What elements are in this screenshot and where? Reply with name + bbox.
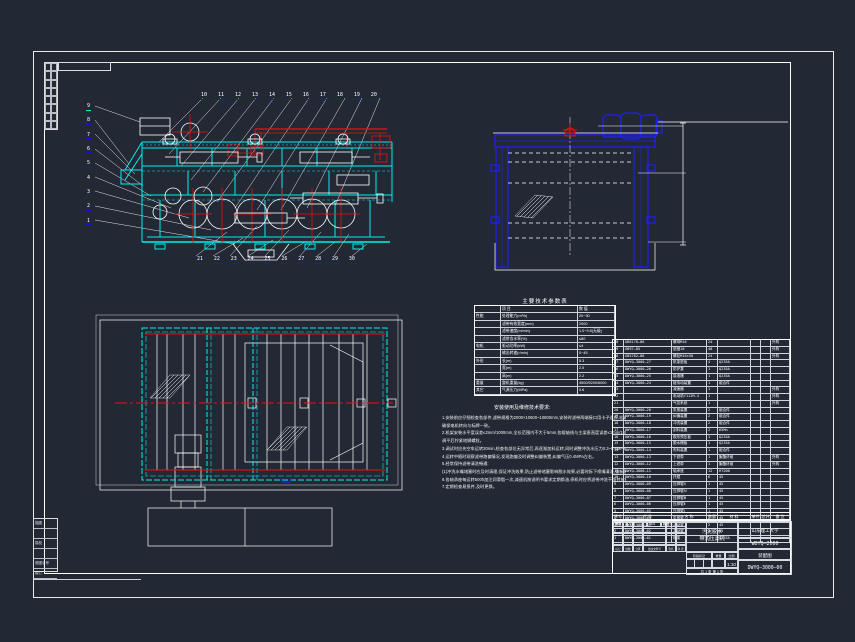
bom-row: 30GB6170—86螺母M16 24 外购	[613, 340, 790, 347]
part-callout: 6	[86, 146, 91, 154]
notes-title: 安装使用及维修技术要求:	[494, 404, 626, 411]
note-line: 7.定期检查易损件,及时更换。	[442, 483, 626, 491]
bom-row: 27DWYQ—3000—27机架垫板 4Q235A	[613, 360, 790, 367]
parameter-row: 其它气源压力(MPa)0.6	[475, 387, 615, 394]
bom-row: 21气控系统 1 外购	[613, 401, 790, 408]
part-callout: 8	[86, 117, 91, 125]
bom-row: 16DWYQ—3000—16楔形预压板 1Q235A	[613, 435, 790, 442]
part-callout: 11	[217, 92, 225, 100]
end-view	[488, 105, 790, 275]
bom-header-cell: 数量	[707, 513, 718, 519]
note-line: (1)冲洗水嘴堵塞时应及时清理,保证冲洗效果,防止滤带堵塞影响脱水效果,必要时拆…	[442, 468, 626, 476]
drawing-number: DWYQ—3000—00	[739, 561, 791, 575]
bom-row: 12DWYQ—3000—12上滤带 1聚酯纤维 外购	[613, 462, 790, 469]
bom-header-cell: 名 称	[672, 513, 707, 519]
sheet-count: 共 1 张 第 1 张	[687, 569, 737, 575]
note-line: 1.安装前应仔细检查各部件,滤带规格为2000×10600~10800mm,安装…	[442, 414, 626, 422]
part-callout: 13	[251, 92, 259, 100]
bom-row: 29GB97—85垫圈16 48 外购	[613, 347, 790, 354]
bom-row: 26DWYQ—3000—26防护罩 1Q235A	[613, 367, 790, 374]
revision-strip	[44, 62, 58, 130]
bom-row: 17DWYQ—3000—17刮料装置 265Mn	[613, 428, 790, 435]
note-line: 调平后拧紧地脚螺栓。	[442, 437, 626, 445]
note-line: 2.机架安装水平度误差≤2mm/1000mm,全长范围内不大于5mm,各辊轴线与…	[442, 429, 626, 437]
cad-drawing-sheet: 描图描校底图总号装订	[0, 0, 855, 642]
part-callout: 15	[285, 92, 293, 100]
callouts-bottom: 21222324252627282930	[196, 256, 356, 264]
part-callout: 10	[200, 92, 208, 100]
revision-strip-header	[58, 62, 111, 71]
part-callout: 2	[86, 203, 91, 211]
part-callout: 29	[331, 256, 339, 264]
bom-row: 22电动机Y112M-4 1 外购	[613, 394, 790, 401]
note-line: 4.运转中随时观察滤带跑偏情况,发现跑偏及时调整纠偏装置,纠偏气压0.4MPa左…	[442, 453, 626, 461]
part-callout: 21	[196, 256, 204, 264]
bom-row: 8DWYQ—3000—08压榨辊Ⅳ 145	[613, 489, 790, 496]
piping-and-centerlines	[172, 114, 390, 244]
end-red-fitting	[563, 123, 577, 136]
bom-row: 14DWYQ—3000—14布料装置 1组合件	[613, 448, 790, 455]
part-callout: 9	[86, 103, 91, 111]
bom-row: 15DWYQ—3000—15脱水栅板 1Q235A	[613, 441, 790, 448]
parameter-row: 宽(m)2.5	[475, 365, 615, 372]
margin-block: 描图描校底图总号装订	[33, 518, 58, 572]
part-callout: 7	[86, 132, 91, 140]
part-callout: 24	[247, 256, 255, 264]
part-callout: 30	[348, 256, 356, 264]
bom-row: 11DWYQ—3000—11轴承座 12HT200	[613, 469, 790, 476]
parameter-row: 输出转速(r/min)0~45	[475, 350, 615, 357]
bom-header-cell: 代 号	[624, 513, 672, 519]
part-callout: 4	[86, 175, 91, 183]
bom-header-cell: 备 注	[771, 513, 790, 519]
part-callout: 19	[353, 92, 361, 100]
bom-row: 19DWYQ—3000—19纠偏装置 2组合件	[613, 414, 790, 421]
bom-row: 28GB5782—86螺栓M16×50 24 外购	[613, 354, 790, 361]
note-line: 6.各轴承座每运转500h加注润滑脂一次,减速机按说明书要求定期换油,停机时应将…	[442, 476, 626, 484]
parameter-table: 项 目数 值 性能处理能力(m³/h)20~30 滤带有效宽度(mm)2000 …	[474, 305, 616, 396]
margin-row	[34, 549, 57, 559]
signature-header-row: 标记处数分区更改文件号签名年.月.日	[613, 545, 686, 552]
bom-header: 序号代 号名 称数量材 料单件总计备 注	[612, 512, 791, 520]
bom-row: 9DWYQ—3000—09压榨辊Ⅴ 145	[613, 482, 790, 489]
plan-view	[95, 310, 415, 555]
note-line: 3.调试时应先空车运转30min,检查各部位无异常后,再逐渐加料运转,同时调整冲…	[442, 445, 626, 453]
parameter-row: 高(m)2.2	[475, 373, 615, 380]
bom-row: 13DWYQ—3000—13下滤带 1聚酯纤维 外购	[613, 455, 790, 462]
part-callout: 1	[86, 218, 91, 226]
front-elevation-view	[85, 92, 450, 297]
machine-frame	[121, 142, 392, 249]
part-callout: 14	[268, 92, 276, 100]
bom-row: 23减速器 1 外购	[613, 387, 790, 394]
binding-edge-line	[33, 579, 141, 580]
bom-row: 25DWYQ—3000—25接液槽 1Q235A	[613, 374, 790, 381]
parameter-row: 电机驱动功率(kW)≤4	[475, 343, 615, 350]
parameter-row: 滤带速度(m/min)1.0~9.8(无级)	[475, 328, 615, 335]
part-callout: 20	[370, 92, 378, 100]
part-callout: 16	[302, 92, 310, 100]
bom-row: 18DWYQ—3000—18冲洗装置 2组合件	[613, 421, 790, 428]
parameter-row: 重量整机重量(kg)4500/5200/6000	[475, 380, 615, 387]
part-callout: 12	[234, 92, 242, 100]
parameter-row: 滤饼含水率(%)≤80	[475, 336, 615, 343]
end-rails-dimensions	[493, 117, 788, 270]
callouts-left: 987654321	[86, 103, 96, 225]
bom-header-cell: 总计	[761, 513, 771, 519]
scale-value: 1:10	[726, 560, 737, 568]
notes-lines: 1.安装前应仔细检查各部件,滤带规格为2000×10600~10800mm,安装…	[442, 414, 626, 491]
parameter-row: 滤带有效宽度(mm)2000	[475, 321, 615, 328]
bom-header-cell: 序号	[613, 513, 624, 519]
title-block: 标记处数分区更改文件号签名年.月.日 设计王磊05.6标准化 审核 工艺批准 污…	[612, 520, 791, 574]
bom-row: 7DWYQ—3000—07压榨辊Ⅲ 145	[613, 496, 790, 503]
technical-notes: 安装使用及维修技术要求: 1.安装前应仔细检查各部件,滤带规格为2000×106…	[442, 404, 626, 491]
parameter-row: 项 目数 值	[475, 306, 615, 313]
part-callout: 22	[213, 256, 221, 264]
parameter-row: 外形长(m)5.3	[475, 358, 615, 365]
bom-row: 10DWYQ—3000—10托辊 645	[613, 475, 790, 482]
bom-row: 24DWYQ—3000—24链传动装置 1组合件	[613, 381, 790, 388]
part-callout: 23	[230, 256, 238, 264]
margin-row: 底图总号	[34, 559, 57, 569]
bom-row: 6DWYQ—3000—06压榨辊Ⅱ 145	[613, 502, 790, 509]
organization-name: 山东理工大学	[739, 522, 791, 538]
part-callout: 5	[86, 160, 91, 168]
bom-header-cell: 单件	[751, 513, 761, 519]
model-number: WDYQ—2000	[739, 539, 791, 549]
margin-row: 装订	[34, 569, 57, 579]
bom-header-cell: 材 料	[718, 513, 751, 519]
part-callout: 18	[336, 92, 344, 100]
end-frame	[491, 113, 662, 267]
callouts-top: 1011121314151617181920	[200, 92, 378, 100]
part-callout: 3	[86, 189, 91, 197]
margin-row: 描图	[34, 519, 57, 529]
document-type: 装配图	[739, 550, 791, 560]
product-name-line2: 带式压滤机	[687, 535, 737, 542]
part-callout: 17	[319, 92, 327, 100]
plan-belt-frame	[142, 328, 387, 480]
parameter-row: 性能处理能力(m³/h)20~30	[475, 313, 615, 320]
part-callout: 26	[280, 256, 288, 264]
param-table-title: 主要技术参数表	[474, 297, 616, 305]
margin-row	[34, 529, 57, 539]
part-callout: 27	[297, 256, 305, 264]
part-callout: 28	[314, 256, 322, 264]
role-row	[613, 521, 686, 527]
margin-row: 描校	[34, 539, 57, 549]
note-line: 5.经常保持滤带清洗畅通:	[442, 460, 626, 468]
part-callout: 25	[264, 256, 272, 264]
note-line: 确保电机转向与标牌一致。	[442, 422, 626, 430]
product-name-line1: 污泥脱水	[687, 528, 737, 535]
bom-row: 20DWYQ—3000—20张紧装置 2组合件	[613, 408, 790, 415]
